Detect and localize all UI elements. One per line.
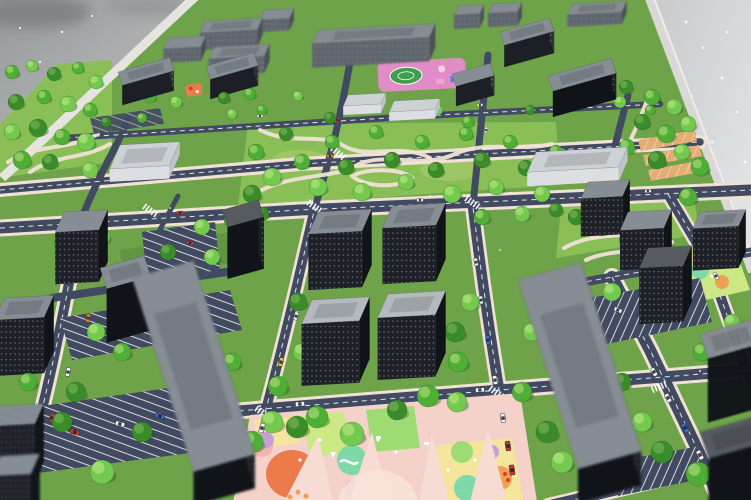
building (454, 5, 484, 30)
building (222, 200, 264, 279)
building (343, 93, 386, 115)
building (382, 203, 445, 284)
car (475, 387, 484, 392)
scene-canvas (0, 0, 751, 500)
building (0, 454, 40, 500)
car (176, 211, 183, 215)
building (488, 2, 522, 27)
car (477, 103, 483, 106)
building (389, 99, 440, 122)
car (295, 401, 304, 406)
car (417, 198, 424, 202)
building (639, 246, 692, 325)
building (693, 210, 746, 271)
car (327, 154, 333, 158)
building (260, 8, 294, 32)
building (110, 142, 180, 182)
building (55, 210, 108, 285)
building (527, 147, 627, 186)
car (257, 114, 263, 117)
building (312, 24, 435, 68)
building (0, 295, 54, 376)
mini-playground (185, 83, 203, 97)
building (302, 297, 370, 386)
building (567, 1, 627, 27)
building (308, 209, 371, 290)
building (378, 291, 446, 380)
city-model-photo (0, 0, 751, 500)
car (645, 189, 652, 193)
